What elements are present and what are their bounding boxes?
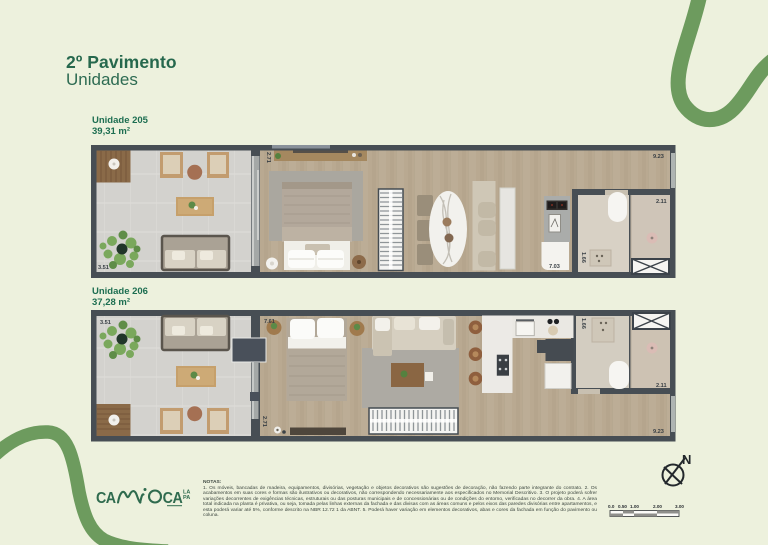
svg-text:3.00: 3.00 <box>675 504 684 509</box>
svg-text:9.23: 9.23 <box>653 429 664 435</box>
svg-text:2.00: 2.00 <box>653 504 662 509</box>
svg-text:1.00: 1.00 <box>630 504 639 509</box>
svg-text:7.03: 7.03 <box>549 264 560 270</box>
svg-text:3.51: 3.51 <box>98 265 109 271</box>
svg-text:3.51: 3.51 <box>100 320 111 326</box>
svg-text:2.11: 2.11 <box>656 383 667 389</box>
svg-text:2.11: 2.11 <box>656 199 667 205</box>
svg-text:2.71: 2.71 <box>261 416 267 427</box>
svg-text:2.71: 2.71 <box>265 152 271 163</box>
svg-text:N: N <box>682 452 691 467</box>
svg-text:1.66: 1.66 <box>580 318 586 329</box>
svg-text:CA: CA <box>96 491 116 508</box>
svg-text:PA: PA <box>183 495 190 501</box>
svg-text:0.0: 0.0 <box>608 504 615 509</box>
svg-text:9.23: 9.23 <box>653 154 664 160</box>
svg-text:7.61: 7.61 <box>264 319 275 325</box>
svg-text:1.66: 1.66 <box>580 252 586 263</box>
svg-text:0.50: 0.50 <box>618 504 627 509</box>
svg-text:CA: CA <box>163 491 183 508</box>
